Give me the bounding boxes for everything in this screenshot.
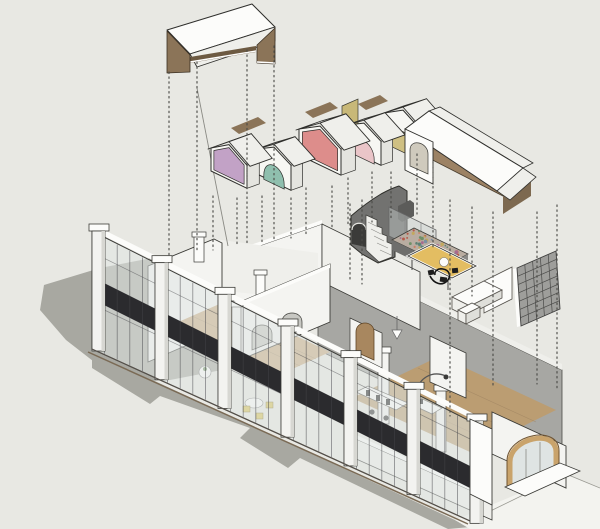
canopy-right-fascia [257,62,275,63]
speckle [400,237,402,239]
pilaster-shade [165,263,169,380]
pilaster-cap [278,319,298,326]
speckle [440,243,444,247]
wall-post-cap [254,270,267,275]
black-chair [452,268,458,274]
speckle [424,235,426,237]
speckle [421,241,424,244]
wall-post [194,236,204,262]
pilaster-cap [341,351,361,358]
speckle [418,232,420,234]
speckle [424,240,428,244]
pilaster-cap [215,287,235,294]
speckle [415,242,418,245]
speckle [414,246,416,248]
pilaster-cap [404,382,424,389]
pilaster-cap [152,256,172,263]
speckle [413,229,415,231]
speckle [445,245,447,247]
speckle [406,237,408,239]
end-wall-pier [470,419,492,505]
black-chair [440,277,448,283]
speckle [446,246,448,248]
speckle [418,246,420,248]
exploded-axonometric-scene [0,0,600,529]
lamp-shade [444,375,449,380]
wall-post-cap [192,232,206,237]
pilaster-shade [102,231,106,351]
speckle [418,239,420,241]
pilaster-shade [354,358,358,466]
speckle [412,232,415,235]
speckle [431,239,433,241]
pilaster-shade [417,389,421,494]
speckle [407,233,409,235]
speckle [418,242,421,245]
speckle [454,250,458,254]
platform-table [440,258,449,267]
stair-arch-opening [352,223,366,247]
speckle [420,237,424,241]
diagram-stage [0,0,600,529]
pilaster-shade [228,294,232,408]
pilaster-shade [291,326,295,437]
pilaster-cap [89,224,109,231]
speckle [409,242,412,245]
speckle [402,238,405,241]
